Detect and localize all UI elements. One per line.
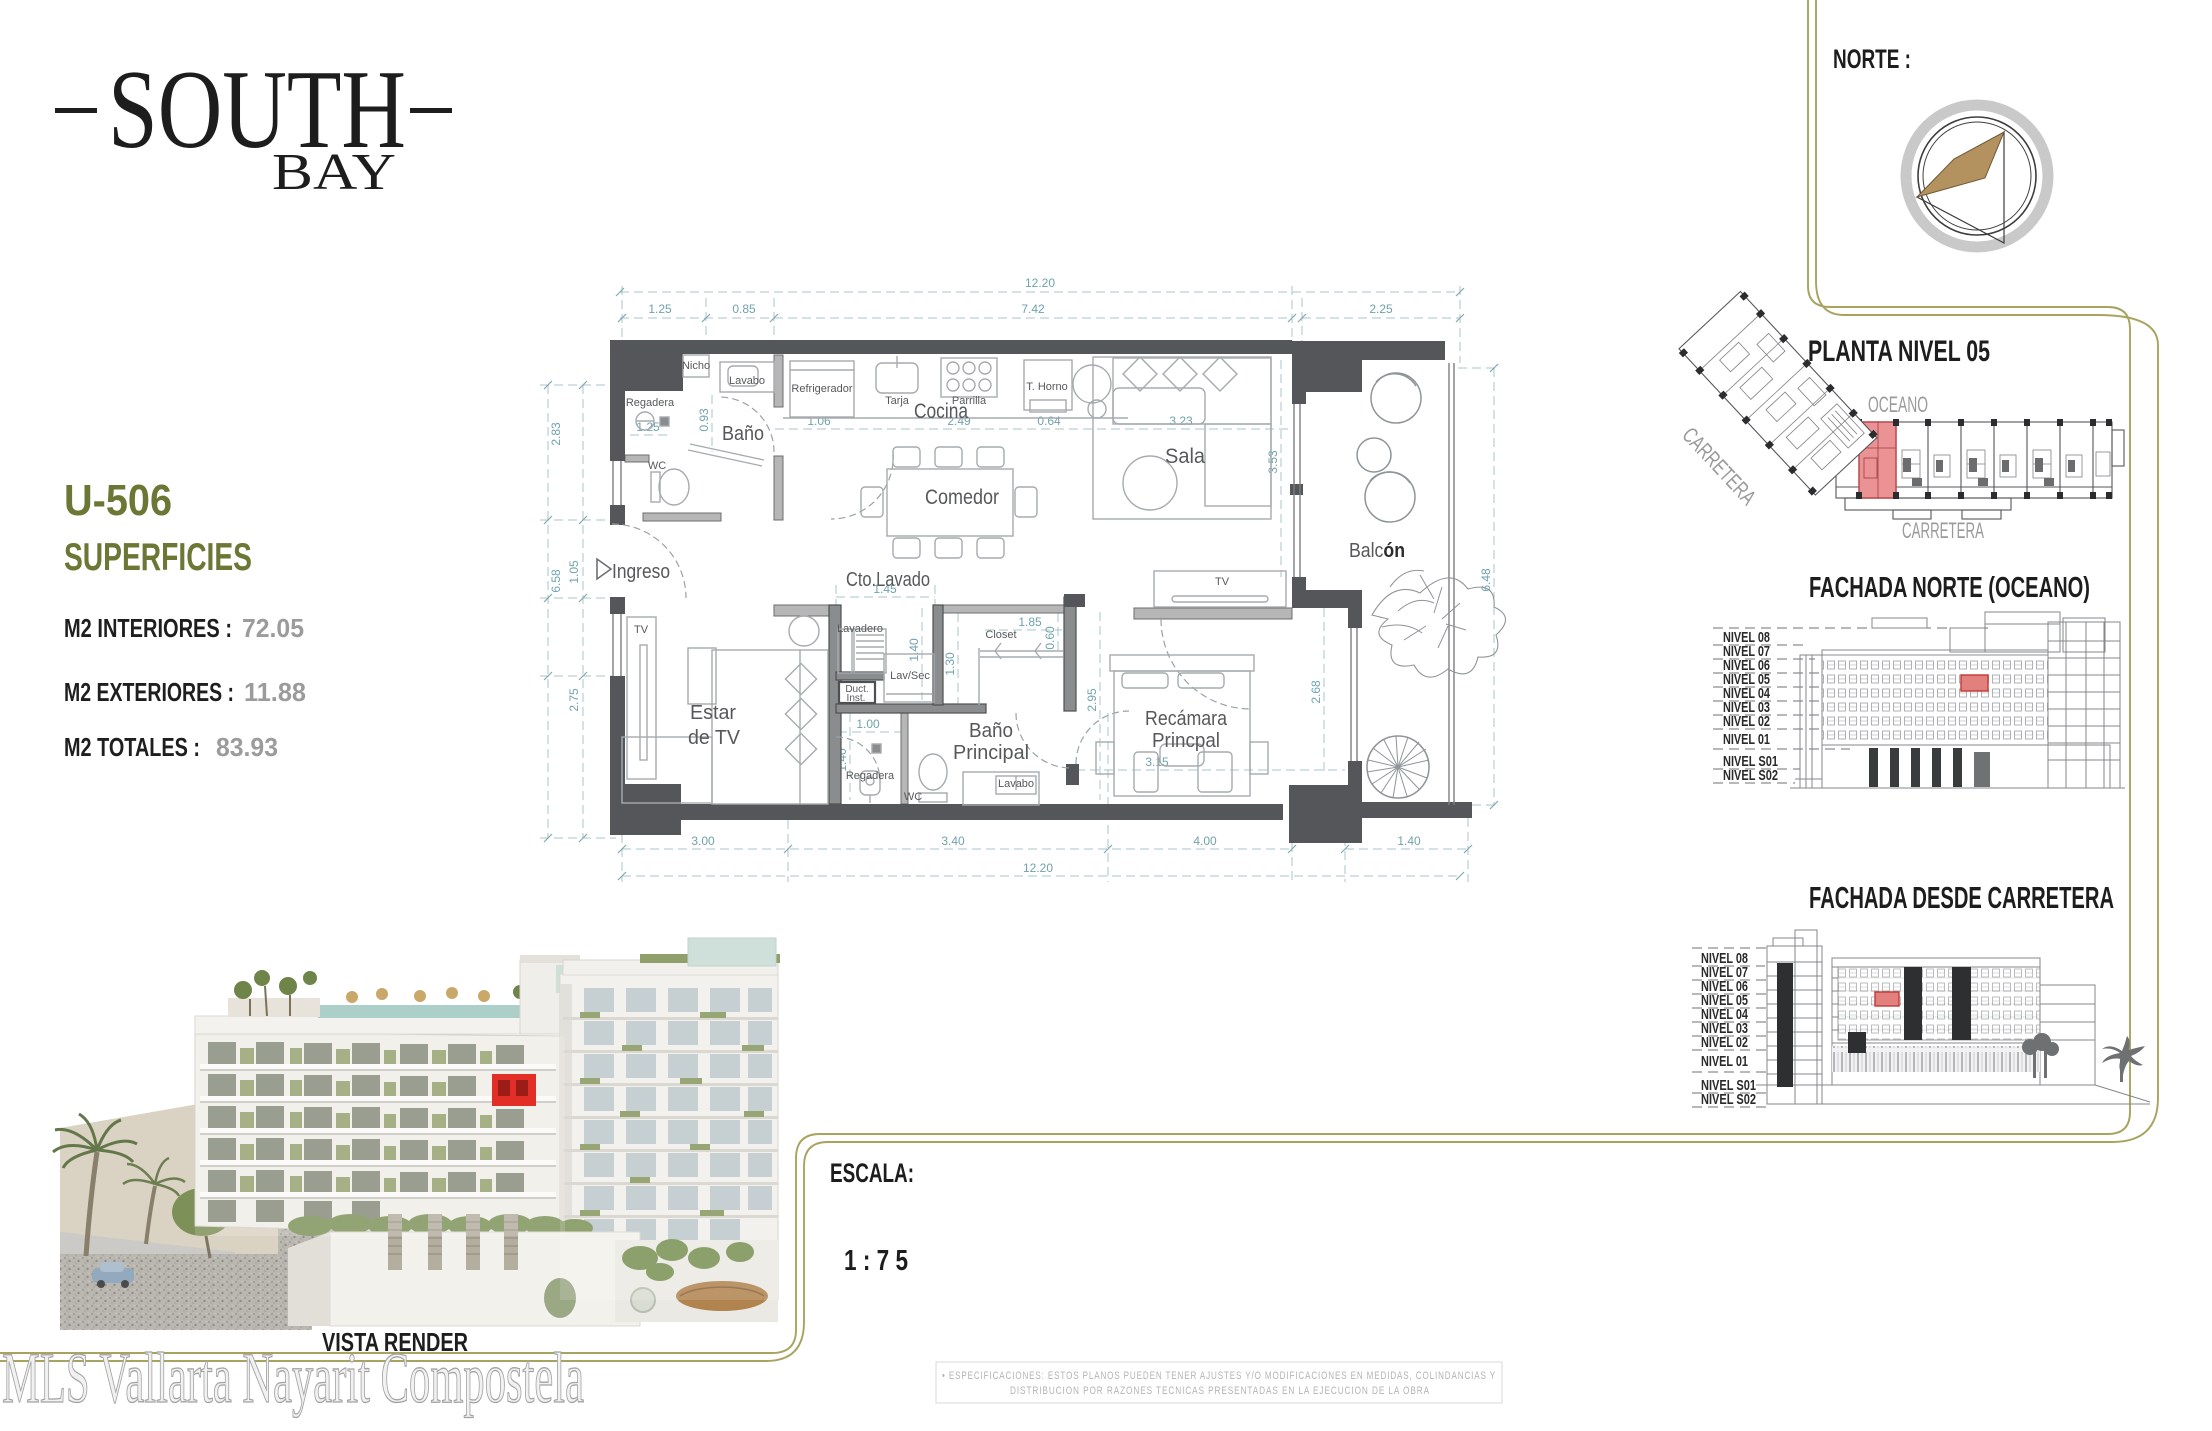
svg-text:Estar: Estar [690,702,736,724]
svg-text:0.93: 0.93 [697,408,711,432]
svg-text:2.83: 2.83 [549,422,563,446]
svg-text:FACHADA NORTE (OCEANO): FACHADA NORTE (OCEANO) [1809,572,2090,604]
svg-text:Sala: Sala [1165,445,1205,468]
svg-text:CARRETERA: CARRETERA [1677,422,1761,509]
svg-text:1 : 7 5: 1 : 7 5 [844,1245,908,1277]
svg-text:4.00: 4.00 [1193,834,1217,848]
svg-text:• ESPECIFICACIONES: ESTOS PLA: • ESPECIFICACIONES: ESTOS PLANOS PUEDEN … [942,1370,1496,1382]
svg-text:de TV: de TV [688,727,741,749]
svg-text:Closet: Closet [985,629,1016,641]
svg-text:1.25: 1.25 [648,302,672,316]
svg-text:Princpal: Princpal [1152,730,1220,752]
svg-text:Lavadero: Lavadero [837,623,883,635]
svg-text:FACHADA DESDE CARRETERA: FACHADA DESDE CARRETERA [1809,880,2114,915]
svg-text:BAY: BAY [272,144,396,201]
svg-text:72.05: 72.05 [242,613,304,643]
svg-text:6.58: 6.58 [549,569,563,593]
svg-text:WC: WC [904,791,922,803]
svg-text:1.06: 1.06 [807,414,831,428]
svg-text:1.40: 1.40 [1397,834,1421,848]
svg-text:7.42: 7.42 [1021,302,1045,316]
svg-text:NIVEL 02: NIVEL 02 [1723,713,1770,730]
svg-text:Principal: Principal [953,742,1029,764]
svg-text:Baño: Baño [722,423,764,445]
svg-text:M2 INTERIORES :: M2 INTERIORES : [64,613,232,643]
svg-text:1.25: 1.25 [636,420,660,434]
svg-text:U-506: U-506 [64,476,172,525]
svg-text:NIVEL S02: NIVEL S02 [1723,767,1778,784]
svg-text:Regadera: Regadera [846,770,895,782]
svg-text:TV: TV [1215,576,1230,588]
svg-text:11.88: 11.88 [244,677,306,707]
svg-text:1.85: 1.85 [1018,615,1042,629]
svg-text:Lavabo: Lavabo [998,778,1034,790]
svg-text:Refrigerador: Refrigerador [791,383,852,395]
svg-text:3.23: 3.23 [1169,414,1193,428]
svg-text:PLANTA NIVEL 05: PLANTA NIVEL 05 [1808,335,1990,368]
svg-text:Parrilla: Parrilla [952,395,987,407]
svg-text:3.53: 3.53 [1266,450,1280,474]
svg-text:1.00: 1.00 [856,717,880,731]
svg-text:83.93: 83.93 [216,732,278,762]
svg-text:Lavabo: Lavabo [729,375,765,387]
svg-text:CARRETERA: CARRETERA [1902,518,1984,543]
svg-text:3.15: 3.15 [1145,755,1169,769]
svg-text:OCEANO: OCEANO [1868,392,1928,417]
svg-text:Lav/Sec: Lav/Sec [890,670,930,682]
svg-text:1.05: 1.05 [567,560,581,584]
svg-text:1.30: 1.30 [943,652,957,676]
svg-text:M2 TOTALES :: M2 TOTALES : [64,732,200,762]
svg-text:Recámara: Recámara [1145,708,1228,730]
svg-text:ESCALA:: ESCALA: [830,1158,914,1188]
svg-text:12.20: 12.20 [1023,861,1053,875]
svg-text:Cto.Lavado: Cto.Lavado [846,569,930,591]
svg-text:3.00: 3.00 [691,834,715,848]
svg-text:T. Horno: T. Horno [1026,381,1068,393]
svg-text:WC: WC [648,460,666,472]
svg-text:1.40: 1.40 [907,638,921,662]
svg-text:MLS Vallarta Nayarit Compostel: MLS Vallarta Nayarit Compostela [2,1338,584,1418]
svg-text:2.25: 2.25 [1369,302,1393,316]
svg-text:Tarja: Tarja [885,395,910,407]
svg-text:0.64: 0.64 [1037,414,1061,428]
svg-text:Nicho: Nicho [682,360,710,372]
svg-text:3.40: 3.40 [941,834,965,848]
svg-text:SUPERFICIES: SUPERFICIES [64,536,252,579]
svg-text:NIVEL 01: NIVEL 01 [1701,1053,1748,1070]
svg-text:Ingreso: Ingreso [612,561,670,583]
svg-text:2.68: 2.68 [1309,680,1323,704]
svg-text:12.20: 12.20 [1025,276,1055,290]
svg-text:Regadera: Regadera [626,397,675,409]
svg-text:0.60: 0.60 [1043,626,1057,650]
svg-text:TV: TV [634,624,649,636]
svg-text:NORTE :: NORTE : [1833,44,1911,74]
svg-text:Balcón: Balcón [1349,540,1405,562]
svg-text:NIVEL 01: NIVEL 01 [1723,731,1770,748]
svg-text:NIVEL S02: NIVEL S02 [1701,1091,1756,1108]
svg-text:DISTRIBUCION POR RAZONES TECNI: DISTRIBUCION POR RAZONES TECNICAS PRESEN… [1010,1385,1430,1397]
svg-text:2.95: 2.95 [1085,688,1099,712]
svg-text:M2 EXTERIORES :: M2 EXTERIORES : [64,677,234,707]
svg-text:0.85: 0.85 [732,302,756,316]
svg-text:Comedor: Comedor [925,486,999,509]
svg-text:VISTA RENDER: VISTA RENDER [322,1327,468,1357]
svg-text:Inst.: Inst. [847,693,866,704]
svg-text:Baño: Baño [969,720,1013,742]
svg-text:NIVEL 02: NIVEL 02 [1701,1034,1748,1051]
svg-text:2.75: 2.75 [567,688,581,712]
